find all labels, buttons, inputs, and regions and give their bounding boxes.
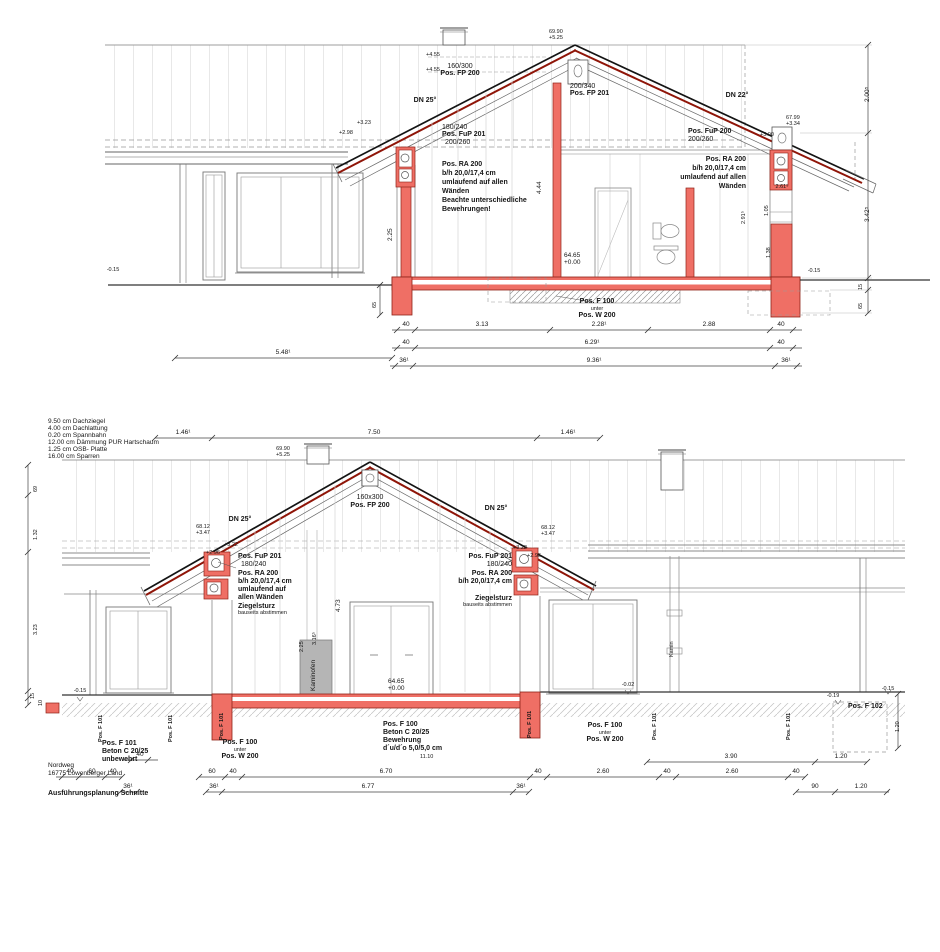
dim-label: 7.50 <box>368 429 381 436</box>
dim-label: 2.91⁵ <box>741 211 747 224</box>
level-mark: +4.55 <box>426 67 440 73</box>
beam-dim: 160x300 <box>357 494 384 502</box>
dim-label: 3.42⁵ <box>864 207 871 222</box>
level-mark: +3.47 <box>196 530 210 536</box>
dim-label: 3.16⁵ <box>312 632 318 645</box>
position-label: Beton C 20/25 <box>383 729 429 737</box>
position-label: Pos. F 100 <box>580 298 615 306</box>
annotation: 180/240 <box>241 561 266 569</box>
ring-anchor-left <box>204 552 230 599</box>
dim-label: 36¹ <box>516 783 525 790</box>
level-mark: +5.25 <box>276 452 290 458</box>
roof-pitch-label: DN 25° <box>485 505 508 513</box>
dim-label: 36¹ <box>209 783 218 790</box>
level-mark: +4.55 <box>426 52 440 58</box>
position-label: Pos. FP 200 <box>440 70 479 78</box>
annotation: b/h 20,0/17,4 cm <box>458 578 512 586</box>
annotation: b/h 20,0/17,4 cm <box>238 578 292 586</box>
annotation: b/h 20,0/17,4 cm <box>442 170 496 178</box>
dim-label: 40 <box>534 768 541 775</box>
window <box>546 600 640 694</box>
position-label: Pos. F 100 <box>223 739 258 747</box>
dim-label: 1.05 <box>764 205 770 216</box>
annotation: umlaufend auf allen <box>442 179 508 187</box>
annotation: Pos. RA 200 <box>706 156 746 164</box>
dim-label: 90 <box>811 783 818 790</box>
level-mark: +3.22 <box>513 545 527 551</box>
position-label: Pos. F 101 <box>786 713 792 740</box>
annotation: bauseits abstimmen <box>463 602 512 608</box>
ridge-purlin <box>362 470 378 486</box>
dim-label: 2.61⁵ <box>776 184 789 190</box>
dim-label: 40 <box>777 339 784 346</box>
dim-label: 15 <box>858 284 864 290</box>
project-address: Nordweg <box>48 762 74 769</box>
dim-label: 2.25 <box>387 228 394 241</box>
position-label: Pos. F 101 <box>168 715 174 742</box>
annotation: Pos. RA 200 <box>238 570 278 578</box>
annotation: Pos. FuP 201 <box>469 553 512 561</box>
position-label: Pos. FuP 200 <box>688 128 731 136</box>
level-mark: +2.96 <box>527 553 541 559</box>
dim-label: 5.48¹ <box>276 349 291 356</box>
position-label: unbewehrt <box>102 756 137 764</box>
dim-label: 40 <box>229 768 236 775</box>
interior-door <box>595 188 631 278</box>
wall-red <box>401 185 411 278</box>
annotation: Pos. FuP 201 <box>238 553 281 561</box>
ridge-purlin <box>568 60 588 84</box>
dim-label: 4.44 <box>536 181 543 194</box>
project-address: 16775 Löwenberger Land <box>48 770 122 777</box>
annotation: Pos. RA 200 <box>472 570 512 578</box>
section2-wings <box>62 545 905 695</box>
dim-label: 40 <box>402 339 409 346</box>
porch-post <box>860 558 866 692</box>
drawing-title: Ausführungsplanung Schnitte <box>48 790 148 798</box>
washbasin <box>654 246 678 264</box>
dim-label: 1.46¹ <box>561 429 576 436</box>
wall-red <box>686 188 694 278</box>
dim-label: 6.29¹ <box>585 339 600 346</box>
dim-label: 4.73 <box>335 599 342 612</box>
dim-label: 36¹ <box>781 357 790 364</box>
legend-row: 16.00 cm Sparren <box>48 453 100 460</box>
section1-chimney <box>440 28 468 45</box>
annotation: 180/240 <box>487 561 512 569</box>
position-label: Pos. F 101 <box>219 713 225 740</box>
dim-label: 65 <box>858 303 864 309</box>
dim-label: 40 <box>777 321 784 328</box>
position-label: Pos. F 102 <box>848 703 883 711</box>
dim-label: 69 <box>33 486 39 492</box>
dim-label: 40 <box>663 768 670 775</box>
dim-label: 1.38 <box>766 247 772 258</box>
annotation: Pos. RA 200 <box>442 161 482 169</box>
annotation: Wänden <box>442 188 469 196</box>
level-mark: +3.47 <box>541 531 555 537</box>
dim-label: 3.23 <box>33 624 39 635</box>
position-label: Pos. W 200 <box>587 736 624 744</box>
annotation: Wänden <box>719 183 746 191</box>
foundation-pier <box>392 277 412 315</box>
level-mark: -0.02 <box>622 682 635 688</box>
annotation: umlaufend auf <box>238 586 286 594</box>
level-mark: +0.00 <box>564 259 580 266</box>
level-mark: +3.23 <box>357 120 371 126</box>
roof-pitch-label: DN 25° <box>229 516 252 524</box>
kamin-flue <box>667 556 682 692</box>
window <box>203 172 225 280</box>
dim-label: 9.36¹ <box>587 357 602 364</box>
dim-label: 11.10 <box>420 754 433 760</box>
annotation: Bewehrungen! <box>442 206 491 214</box>
level-mark: -0.19 <box>827 693 840 699</box>
dim-label: 3.13 <box>476 321 489 328</box>
section1-left-wing <box>105 152 395 285</box>
ring-anchor-left <box>396 147 415 187</box>
dim-label: 1.20 <box>835 753 848 760</box>
kamin-label: Kamin <box>669 641 675 657</box>
roof-pitch-label: DN 22° <box>726 92 749 100</box>
wall-red <box>553 83 561 278</box>
dim-label: 1.46¹ <box>176 429 191 436</box>
position-label: Pos. F 101 <box>527 711 533 738</box>
dim-label: 10 <box>38 700 44 706</box>
dim-label: 65 <box>372 302 378 308</box>
annotation: Beachte unterschiedliche <box>442 197 527 205</box>
section2-roof-band <box>62 460 905 552</box>
plan-sheet: 9.50 cm Dachziegel 4.00 cm Dachlattung 0… <box>0 0 940 952</box>
window <box>103 607 174 693</box>
dim-label: 6.77 <box>362 783 375 790</box>
dim-label: 40 <box>792 768 799 775</box>
level-mark: -0.15 <box>74 688 87 694</box>
annotation: umlaufend auf allen <box>680 174 746 182</box>
dim-label: 15 <box>30 693 36 699</box>
section1-foundation <box>392 277 930 317</box>
dim-label: 2.28¹ <box>592 321 607 328</box>
level-mark: -0.15 <box>107 267 120 273</box>
level-mark: +0.00 <box>388 685 404 692</box>
position-label: Pos. F 101 <box>652 713 658 740</box>
position-label: Pos. FuP 201 <box>442 131 485 139</box>
dim-label: 2.88 <box>703 321 716 328</box>
foundation-small <box>46 703 59 713</box>
level-mark: +2.98 <box>339 130 353 136</box>
dim-label: 2.25 <box>299 641 305 652</box>
roof-pitch-label: DN 25° <box>414 97 437 105</box>
dim-label: 3.90 <box>725 753 738 760</box>
annotation: bauseits abstimmen <box>238 610 287 616</box>
position-label: d´u/d´o 5,0/5,0 cm <box>383 745 442 753</box>
dim-label: 40 <box>402 321 409 328</box>
dim-label: 1.20 <box>855 783 868 790</box>
dim-label: 36¹ <box>399 357 408 364</box>
dim-label: 40 <box>136 751 143 758</box>
foundation-pier <box>771 277 800 317</box>
dim-label: 2.60 <box>726 768 739 775</box>
position-label: Pos. F 101 <box>98 715 104 742</box>
beam-dim: 200/260 <box>445 139 470 147</box>
level-mark: -0.15 <box>882 686 895 692</box>
toilet <box>653 223 679 239</box>
position-label: Pos. F 101 <box>102 740 137 748</box>
level-mark: +3.22 <box>224 542 238 548</box>
position-label: Pos. W 200 <box>222 753 259 761</box>
annotation: b/h 20,0/17,4 cm <box>692 165 746 173</box>
dim-label: 1.32 <box>33 529 39 540</box>
annotation: allen Wänden <box>238 594 283 602</box>
window <box>235 173 365 273</box>
dim-label: 60 <box>208 768 215 775</box>
level-mark: +2.96 <box>206 550 220 556</box>
level-mark: +5.25 <box>549 35 563 41</box>
position-label: Pos. W 200 <box>579 312 616 320</box>
position-label: Pos. FP 201 <box>570 90 609 98</box>
position-label: Bewehrung <box>383 737 421 745</box>
position-label: Pos. F 100 <box>383 721 418 729</box>
position-label: Pos. F 100 <box>588 722 623 730</box>
kaminofen-label: Kaminofen <box>310 660 317 691</box>
wall-red <box>771 224 792 278</box>
dim-label: 2.00⁵ <box>864 87 871 102</box>
dim-label: 2.60 <box>597 768 610 775</box>
position-label: Pos. FP 200 <box>350 502 389 510</box>
dim-label: 6.70 <box>380 768 393 775</box>
dim-label: 1.20 <box>895 721 901 732</box>
level-mark: -0.15 <box>808 268 821 274</box>
level-mark: +3.34 <box>786 121 800 127</box>
beam-dim: 200/260 <box>688 136 713 144</box>
level-mark: +3.00 <box>760 132 774 138</box>
